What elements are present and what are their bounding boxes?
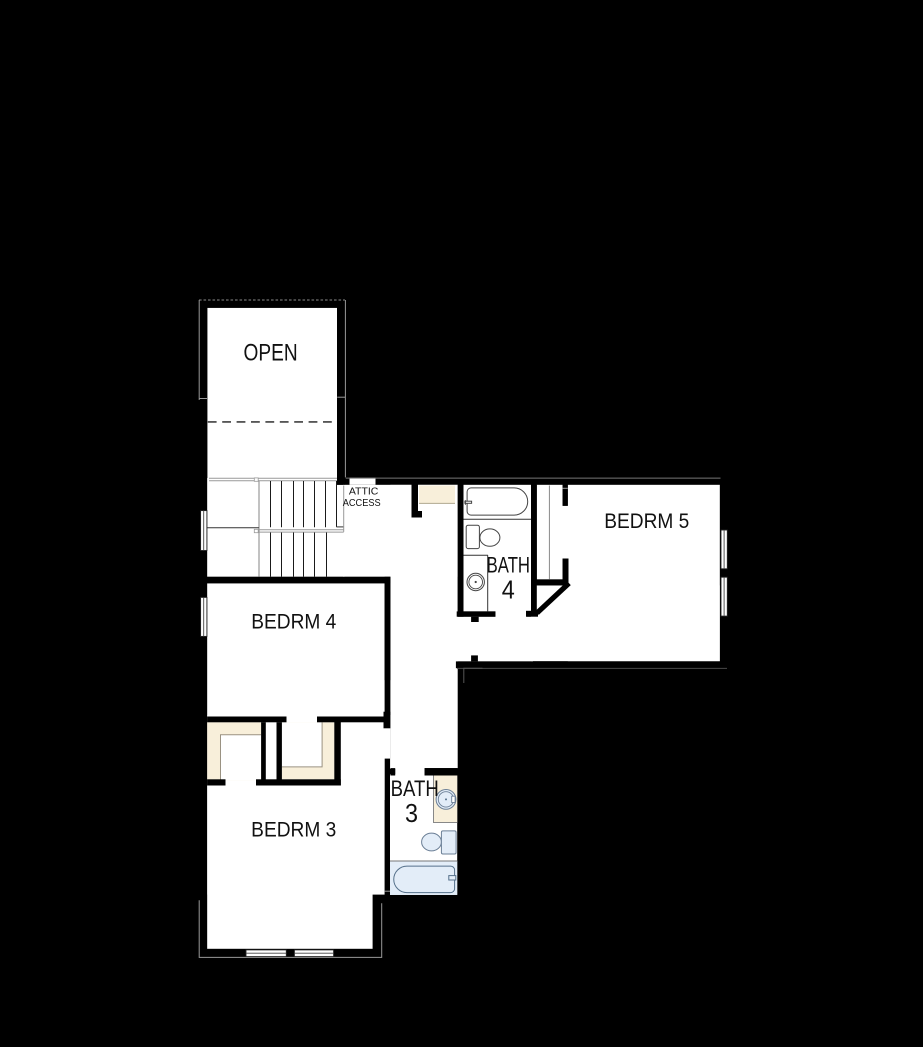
- svg-text:BEDRM 5: BEDRM 5: [604, 510, 689, 533]
- svg-text:OPEN: OPEN: [244, 338, 298, 366]
- svg-text:BEDRM 4: BEDRM 4: [251, 611, 336, 634]
- svg-text:ACCESS: ACCESS: [343, 497, 381, 509]
- svg-text:4: 4: [502, 576, 515, 604]
- svg-text:BEDRM 3: BEDRM 3: [251, 818, 336, 841]
- svg-text:BATH: BATH: [391, 778, 439, 802]
- svg-text:BATH: BATH: [487, 553, 530, 578]
- svg-text:3: 3: [405, 800, 418, 828]
- svg-text:ATTIC: ATTIC: [349, 485, 379, 497]
